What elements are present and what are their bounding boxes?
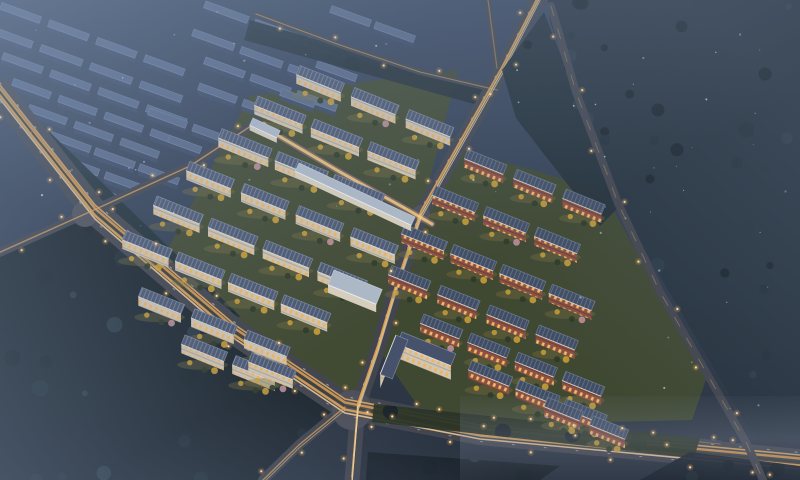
bokeh-speck (135, 169, 136, 170)
bokeh-speck (726, 302, 727, 303)
bokeh-speck (739, 33, 741, 35)
bokeh-speck (753, 144, 754, 145)
bokeh-speck (729, 408, 730, 409)
bokeh-speck (595, 104, 597, 106)
bokeh-speck (755, 113, 756, 114)
bokeh-speck (417, 159, 418, 160)
bokeh-speck (573, 105, 575, 107)
bokeh-speck (74, 84, 75, 85)
render-canvas (0, 0, 800, 480)
bokeh-speck (691, 147, 692, 148)
bokeh-speck (642, 57, 644, 59)
bokeh-speck (143, 161, 145, 163)
bokeh-speck (600, 232, 602, 234)
bokeh-speck (404, 207, 405, 208)
bokeh-speck (663, 387, 665, 389)
bokeh-speck (691, 362, 692, 363)
bokeh-speck (41, 194, 43, 196)
bokeh-speck (625, 217, 627, 219)
bokeh-speck (71, 169, 73, 171)
bokeh-speck (757, 404, 759, 406)
bokeh-speck (715, 52, 716, 53)
bokeh-speck (497, 227, 498, 228)
bokeh-speck (140, 226, 141, 227)
bokeh-speck (389, 183, 391, 185)
bokeh-speck (173, 212, 175, 214)
bokeh-speck (173, 34, 175, 36)
bokeh-speck (248, 179, 250, 181)
bokeh-speck (633, 84, 634, 85)
bokeh-speck (580, 296, 582, 298)
bokeh-speck (683, 190, 684, 191)
bokeh-speck (166, 215, 167, 216)
bokeh-speck (767, 287, 768, 288)
bokeh-speck (590, 301, 591, 302)
bokeh-speck (89, 122, 91, 124)
bokeh-speck (759, 49, 760, 50)
bokeh-speck (516, 69, 518, 71)
bokeh-speck (667, 336, 669, 338)
bokeh-speck (705, 98, 707, 100)
layer-haze (0, 0, 800, 480)
aerial-development-render (0, 0, 800, 480)
bokeh-speck (122, 77, 123, 78)
bokeh-speck (650, 211, 651, 212)
bokeh-speck (653, 167, 654, 168)
bokeh-speck (495, 191, 496, 192)
bokeh-speck (658, 269, 660, 271)
bokeh-speck (583, 298, 584, 299)
bokeh-speck (784, 190, 786, 192)
bokeh-speck (605, 206, 606, 207)
bokeh-speck (760, 232, 761, 233)
bokeh-speck (676, 166, 677, 167)
bokeh-speck (385, 43, 387, 45)
bokeh-speck (216, 11, 218, 13)
bokeh-speck (416, 136, 417, 137)
bokeh-speck (472, 179, 474, 181)
bokeh-speck (168, 212, 169, 213)
bokeh-speck (518, 102, 520, 104)
bokeh-speck (233, 43, 234, 44)
bokeh-speck (31, 132, 32, 133)
bokeh-speck (604, 156, 606, 158)
bokeh-speck (305, 54, 307, 56)
bokeh-speck (128, 167, 130, 169)
bokeh-speck (375, 45, 377, 47)
bokeh-speck (336, 206, 337, 207)
bokeh-speck (243, 60, 245, 62)
bokeh-speck (35, 30, 36, 31)
fog-band-highway (460, 396, 800, 480)
